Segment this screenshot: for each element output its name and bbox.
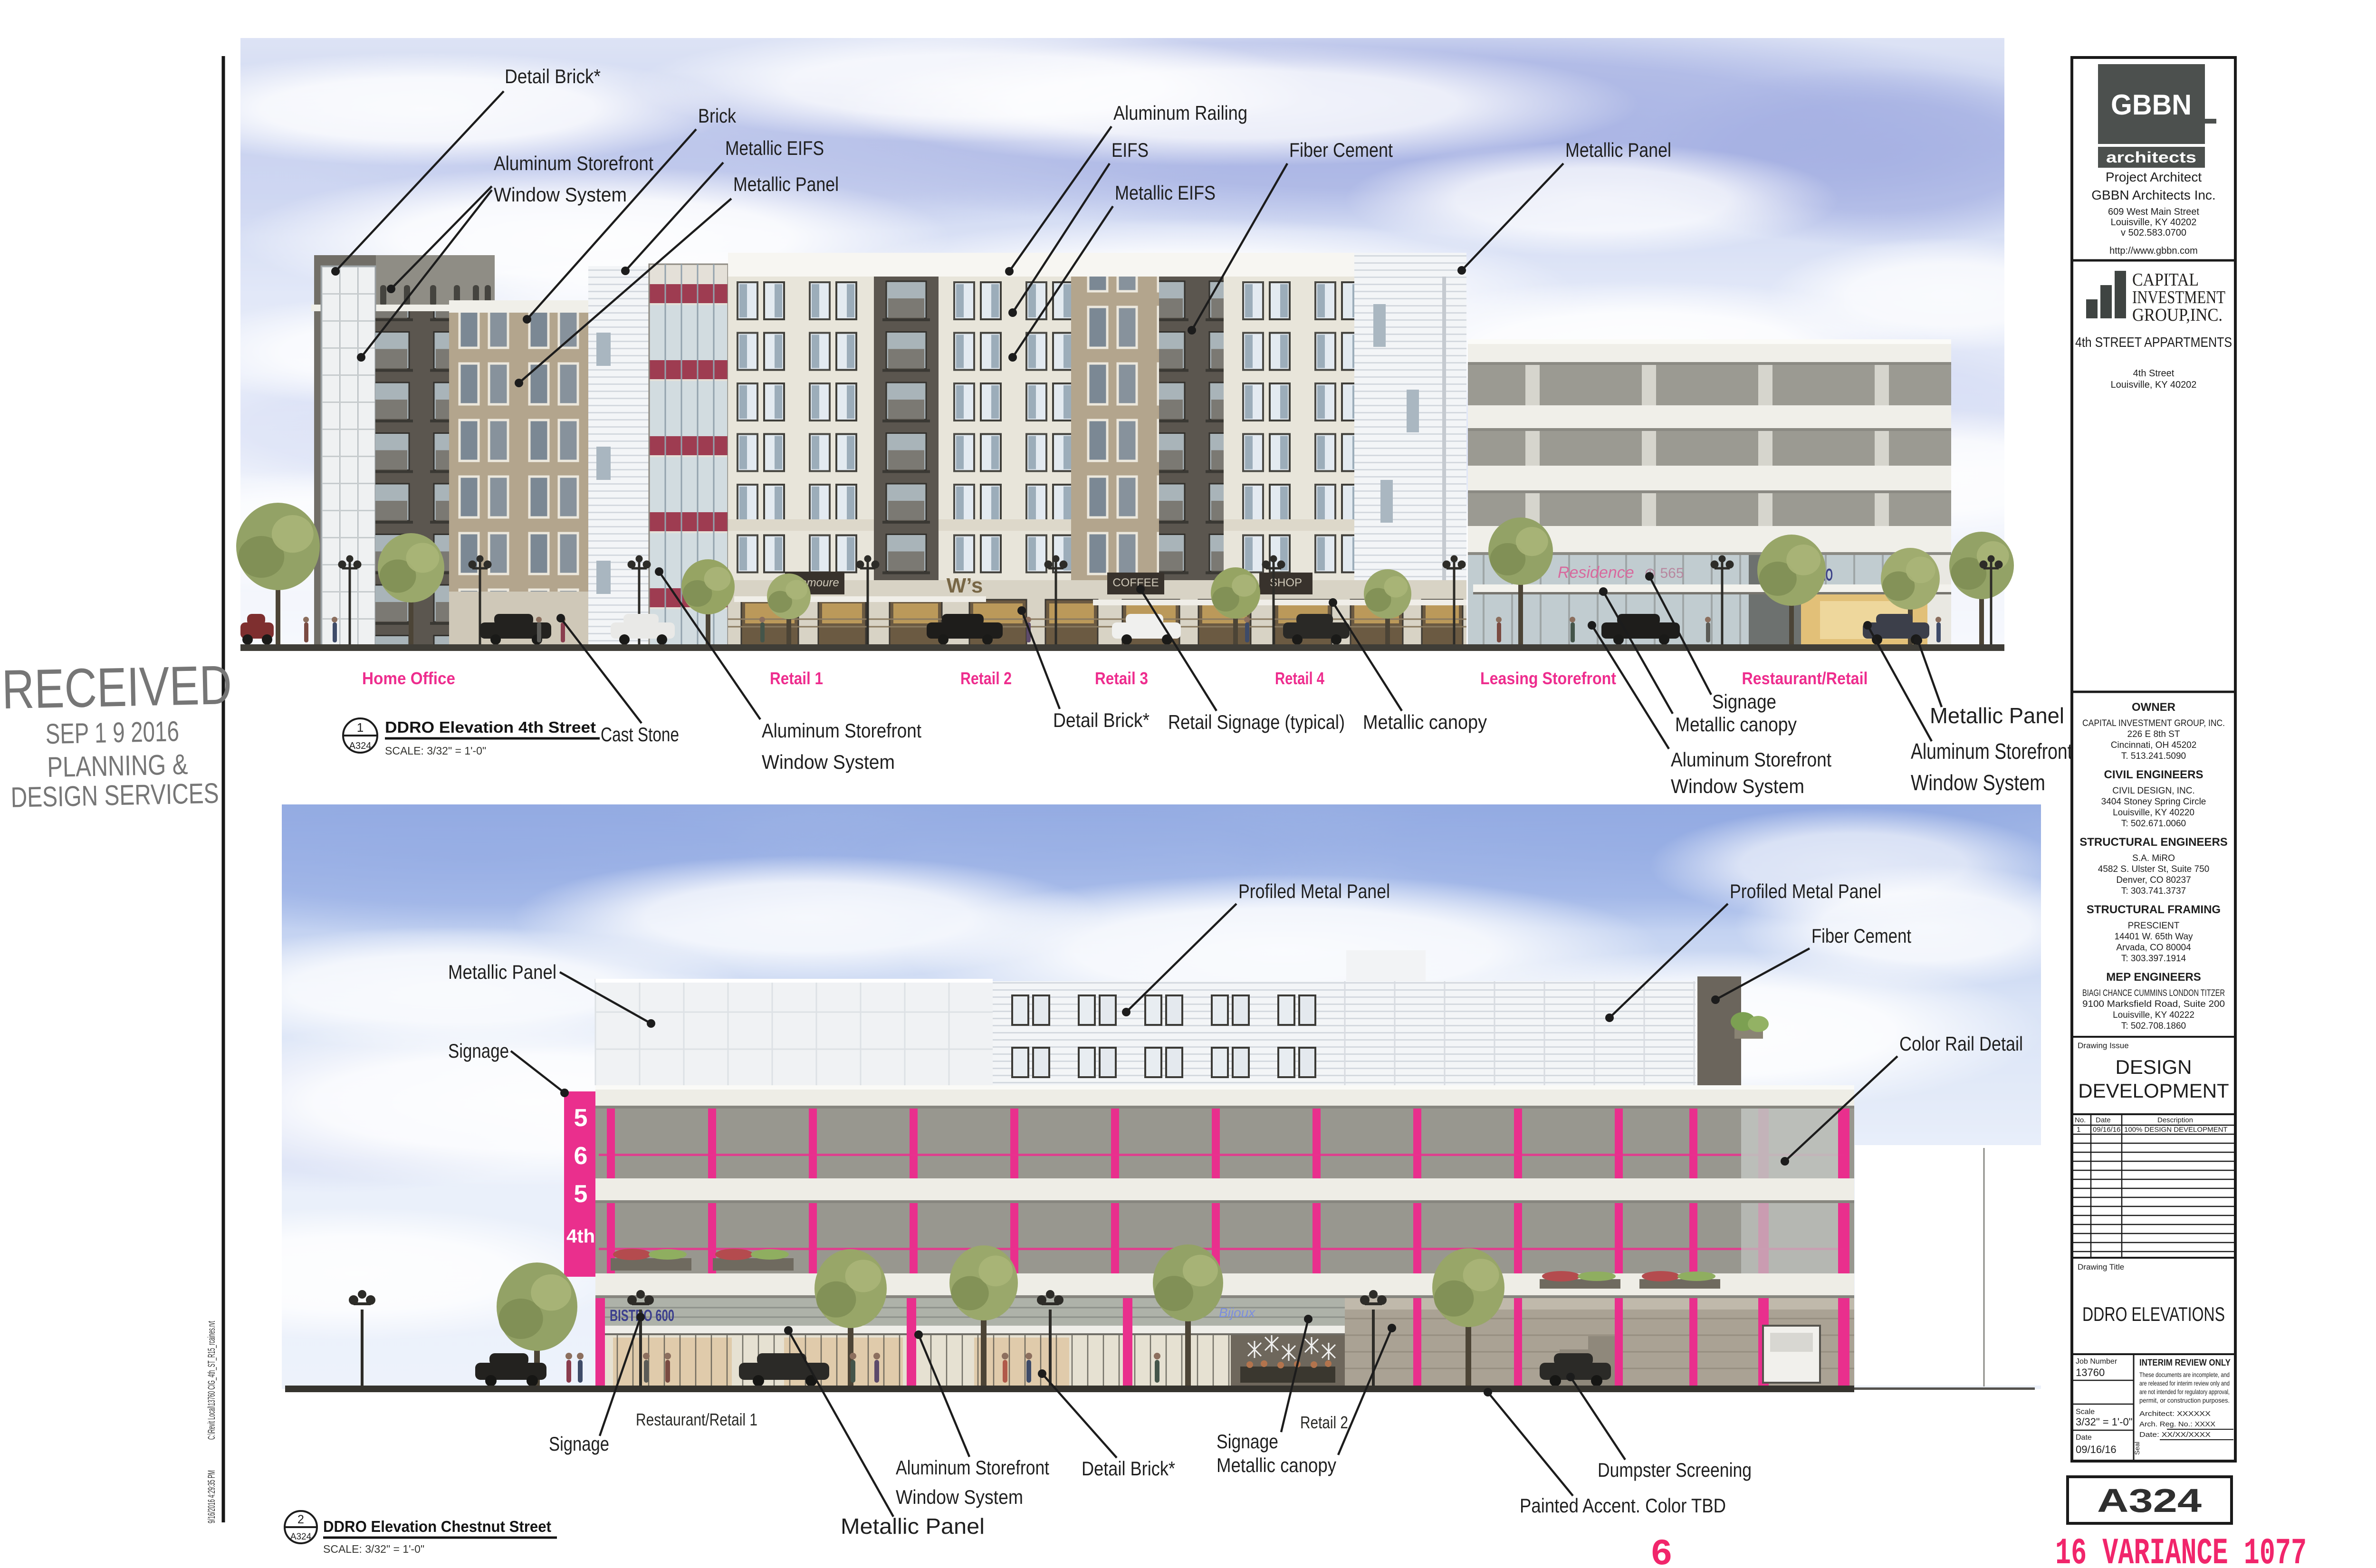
svg-text:Scale: Scale (2076, 1408, 2095, 1416)
svg-text:COFFEE: COFFEE (1112, 576, 1159, 589)
svg-text:Retail 4: Retail 4 (1275, 669, 1324, 688)
svg-text:13760: 13760 (2076, 1367, 2105, 1378)
svg-text:4th: 4th (566, 1226, 595, 1247)
svg-text:Detail Brick*: Detail Brick* (1053, 709, 1150, 731)
svg-text:5: 5 (574, 1180, 588, 1208)
svg-text:Home Office: Home Office (362, 669, 455, 688)
svg-text:Window System: Window System (762, 751, 895, 773)
svg-text:C:\Revit Local\13760 CIG_4th_S: C:\Revit Local\13760 CIG_4th_ST_R15_rcai… (206, 1321, 217, 1440)
svg-text:Profiled Metal Panel: Profiled Metal Panel (1238, 880, 1390, 902)
svg-text:SCALE: 3/32" = 1'-0": SCALE: 3/32" = 1'-0" (385, 745, 486, 757)
svg-text:Louisville, KY 40202: Louisville, KY 40202 (2111, 380, 2197, 390)
svg-text:4th Street: 4th Street (2133, 368, 2175, 379)
svg-text:Retail 2: Retail 2 (960, 669, 1012, 688)
svg-text:Arch. Reg. No.: XXXX: Arch. Reg. No.: XXXX (2139, 1420, 2215, 1428)
svg-text:Fiber Cement: Fiber Cement (1289, 139, 1393, 161)
svg-text:CAPITAL: CAPITAL (2132, 270, 2199, 290)
svg-text:Metallic Panel: Metallic Panel (733, 173, 839, 195)
svg-text:2: 2 (297, 1513, 304, 1526)
svg-text:Detail Brick*: Detail Brick* (505, 65, 601, 87)
svg-text:4582 S. Ulster St, Suite 750: 4582 S. Ulster St, Suite 750 (2098, 864, 2209, 874)
svg-text:Aluminum Storefront: Aluminum Storefront (1911, 739, 2072, 764)
svg-text:Drawing Issue: Drawing Issue (2078, 1041, 2129, 1050)
svg-text:1: 1 (2077, 1126, 2080, 1134)
svg-text:1: 1 (357, 720, 364, 735)
svg-text:Denver, CO 80237: Denver, CO 80237 (2116, 875, 2191, 885)
svg-text:RECEIVED: RECEIVED (1, 654, 233, 720)
svg-text:Signage: Signage (448, 1040, 509, 1062)
svg-text:Architect: XXXXXX: Architect: XXXXXX (2139, 1410, 2211, 1418)
svg-text:609 West Main Street: 609 West Main Street (2108, 207, 2199, 217)
svg-text:Louisville, KY 40220: Louisville, KY 40220 (2113, 808, 2194, 818)
svg-text:Profiled Metal Panel: Profiled Metal Panel (1730, 880, 1881, 902)
svg-text:Restaurant/Retail 1: Restaurant/Retail 1 (636, 1410, 757, 1429)
svg-text:T: 303.397.1914: T: 303.397.1914 (2121, 954, 2186, 964)
svg-text:Window System: Window System (494, 183, 627, 206)
svg-text:Window System: Window System (896, 1486, 1023, 1508)
svg-text:OWNER: OWNER (2132, 701, 2175, 714)
svg-text:3404 Stoney Spring Circle: 3404 Stoney Spring Circle (2101, 797, 2206, 807)
svg-text:INTERIM REVIEW ONLY: INTERIM REVIEW ONLY (2139, 1358, 2231, 1368)
svg-text:are released for interim revie: are released for interim review only and (2139, 1379, 2230, 1387)
svg-text:Signage: Signage (1712, 690, 1776, 713)
svg-text:BIAGI CHANCE CUMMINS LONDON TI: BIAGI CHANCE CUMMINS LONDON TITZER (2082, 988, 2225, 998)
svg-text:DEVELOPMENT: DEVELOPMENT (2078, 1080, 2229, 1102)
svg-text:GBBN: GBBN (2111, 89, 2192, 121)
svg-text:PRESCIENT: PRESCIENT (2128, 921, 2180, 931)
svg-text:T: 502.671.0060: T: 502.671.0060 (2121, 819, 2186, 829)
svg-text:architects: architects (2106, 149, 2196, 166)
svg-text:http://www.gbbn.com: http://www.gbbn.com (2109, 246, 2198, 256)
svg-text:Date: Date (2076, 1434, 2092, 1442)
svg-text:A324: A324 (2097, 1482, 2202, 1519)
svg-text:These documents are incomplete: These documents are incomplete, and (2139, 1371, 2230, 1378)
svg-text:DESIGN SERVICES: DESIGN SERVICES (10, 777, 219, 813)
svg-text:permit, or construction purpos: permit, or construction purposes. (2139, 1396, 2230, 1404)
svg-text:Painted Accent. Color TBD: Painted Accent. Color TBD (1520, 1494, 1726, 1517)
svg-text:Retail 1: Retail 1 (770, 669, 823, 688)
svg-text:Metallic Panel: Metallic Panel (448, 961, 556, 983)
svg-text:T: 303.741.3737: T: 303.741.3737 (2121, 886, 2186, 896)
svg-text:GBBN Architects Inc.: GBBN Architects Inc. (2091, 188, 2215, 202)
svg-text:Color Rail Detail: Color Rail Detail (1899, 1033, 2023, 1055)
svg-text:W’s: W’s (947, 574, 983, 597)
svg-text:Metallic Panel: Metallic Panel (1565, 139, 1671, 161)
svg-text:Retail 3: Retail 3 (1095, 669, 1148, 688)
svg-text:CIVIL ENGINEERS: CIVIL ENGINEERS (2104, 768, 2204, 781)
svg-text:Job Number: Job Number (2076, 1358, 2117, 1366)
svg-text:STRUCTURAL ENGINEERS: STRUCTURAL ENGINEERS (2079, 836, 2228, 849)
svg-text:Arvada, CO 80004: Arvada, CO 80004 (2116, 943, 2191, 953)
svg-text:Retail Signage (typical): Retail Signage (typical) (1168, 711, 1345, 733)
svg-text:T: 502.708.1860: T: 502.708.1860 (2121, 1021, 2186, 1031)
svg-text:INVESTMENT: INVESTMENT (2132, 287, 2225, 307)
svg-text:6: 6 (574, 1142, 588, 1170)
svg-text:3/32" = 1'-0": 3/32" = 1'-0" (2076, 1416, 2133, 1428)
svg-text:Metallic canopy: Metallic canopy (1217, 1454, 1336, 1476)
svg-text:Date: XX/XX/XXXX: Date: XX/XX/XXXX (2139, 1431, 2211, 1439)
svg-text:4th STREET APPARTMENTS: 4th STREET APPARTMENTS (2075, 335, 2232, 350)
svg-text:DESIGN: DESIGN (2115, 1056, 2192, 1078)
svg-text:S.A. MiRO: S.A. MiRO (2132, 853, 2175, 863)
svg-text:6: 6 (1650, 1534, 1673, 1568)
svg-text:Leasing Storefront: Leasing Storefront (1480, 669, 1616, 688)
svg-text:CIVIL DESIGN, INC.: CIVIL DESIGN, INC. (2112, 786, 2195, 796)
svg-text:9100 Marksfield Road, Suite 20: 9100 Marksfield Road, Suite 200 (2082, 999, 2225, 1009)
svg-text:CAPITAL INVESTMENT GROUP, INC.: CAPITAL INVESTMENT GROUP, INC. (2082, 718, 2225, 728)
svg-text:14401 W. 65th Way: 14401 W. 65th Way (2114, 932, 2193, 942)
svg-text:Drawing Title: Drawing Title (2078, 1262, 2124, 1272)
svg-text:A324: A324 (290, 1532, 312, 1542)
svg-text:09/16/16: 09/16/16 (2076, 1444, 2117, 1455)
svg-text:Metallic canopy: Metallic canopy (1363, 711, 1487, 733)
svg-text:Project Architect: Project Architect (2106, 170, 2202, 184)
svg-text:No.: No. (2075, 1116, 2086, 1124)
svg-text:Cast Stone: Cast Stone (601, 723, 679, 746)
svg-text:Aluminum Storefront: Aluminum Storefront (494, 152, 653, 174)
svg-text:9/16/2016 4:29:35 PM: 9/16/2016 4:29:35 PM (206, 1470, 217, 1523)
svg-text:16 VARIANCE 1077: 16 VARIANCE 1077 (2055, 1533, 2307, 1568)
svg-text:Brick: Brick (698, 105, 737, 127)
svg-text:Cincinnati, OH 45202: Cincinnati, OH 45202 (2111, 740, 2197, 750)
svg-text:Description: Description (2157, 1116, 2193, 1124)
svg-text:MEP ENGINEERS: MEP ENGINEERS (2106, 971, 2201, 984)
svg-text:Metallic EIFS: Metallic EIFS (1115, 182, 1216, 204)
svg-text:are not intended for regulator: are not intended for regulatory approval… (2139, 1388, 2230, 1396)
svg-text:Metallic EIFS: Metallic EIFS (725, 137, 824, 159)
svg-text:Aluminum Storefront: Aluminum Storefront (762, 719, 921, 742)
svg-text:STRUCTURAL FRAMING: STRUCTURAL FRAMING (2087, 903, 2221, 916)
svg-text:Aluminum Railing: Aluminum Railing (1113, 102, 1247, 124)
svg-text:Window System: Window System (1911, 770, 2045, 795)
svg-text:DDRO ELEVATIONS: DDRO ELEVATIONS (2082, 1303, 2225, 1325)
svg-text:Aluminum Storefront: Aluminum Storefront (896, 1456, 1049, 1479)
svg-text:SEP 1 9 2016: SEP 1 9 2016 (45, 715, 179, 750)
svg-text:Seal: Seal (2133, 1442, 2141, 1455)
svg-text:Aluminum Storefront: Aluminum Storefront (1671, 748, 1831, 771)
svg-text:EIFS: EIFS (1111, 139, 1149, 161)
svg-text:100% DESIGN DEVELOPMENT: 100% DESIGN DEVELOPMENT (2124, 1126, 2228, 1134)
svg-text:226 E 8th ST: 226 E 8th ST (2127, 729, 2180, 739)
svg-text:A324: A324 (349, 741, 372, 751)
svg-text:Date: Date (2096, 1116, 2111, 1124)
svg-text:Fiber Cement: Fiber Cement (1811, 925, 1911, 947)
svg-text:v 502.583.0700: v 502.583.0700 (2121, 228, 2186, 238)
svg-text:SCALE: 3/32" = 1'-0": SCALE: 3/32" = 1'-0" (323, 1543, 424, 1555)
svg-text:5: 5 (574, 1104, 588, 1132)
svg-text:T. 513.241.5090: T. 513.241.5090 (2121, 751, 2186, 761)
svg-text:Dumpster Screening: Dumpster Screening (1598, 1459, 1752, 1481)
svg-text:Detail Brick*: Detail Brick* (1082, 1457, 1175, 1480)
svg-text:Louisville, KY 40202: Louisville, KY 40202 (2111, 217, 2197, 228)
svg-text:Retail 2: Retail 2 (1300, 1413, 1348, 1432)
svg-text:DDRO Elevation 4th Street: DDRO Elevation 4th Street (385, 718, 596, 736)
svg-text:Signage: Signage (1217, 1430, 1278, 1453)
svg-text:GROUP,INC.: GROUP,INC. (2132, 305, 2223, 325)
svg-text:Metallic canopy: Metallic canopy (1675, 713, 1797, 736)
svg-text:Restaurant/Retail: Restaurant/Retail (1742, 669, 1868, 688)
svg-text:Bijoux: Bijoux (1219, 1305, 1255, 1320)
svg-text:Louisville, KY 40222: Louisville, KY 40222 (2113, 1010, 2194, 1020)
svg-text:Metallic Panel: Metallic Panel (1930, 703, 2064, 728)
svg-text:Window System: Window System (1671, 775, 1804, 797)
svg-text:Residence: Residence (1558, 564, 1634, 582)
svg-text:DDRO Elevation Chestnut Street: DDRO Elevation Chestnut Street (323, 1518, 551, 1535)
svg-text:Metallic Panel: Metallic Panel (841, 1514, 985, 1539)
svg-text:09/16/16: 09/16/16 (2093, 1126, 2120, 1134)
